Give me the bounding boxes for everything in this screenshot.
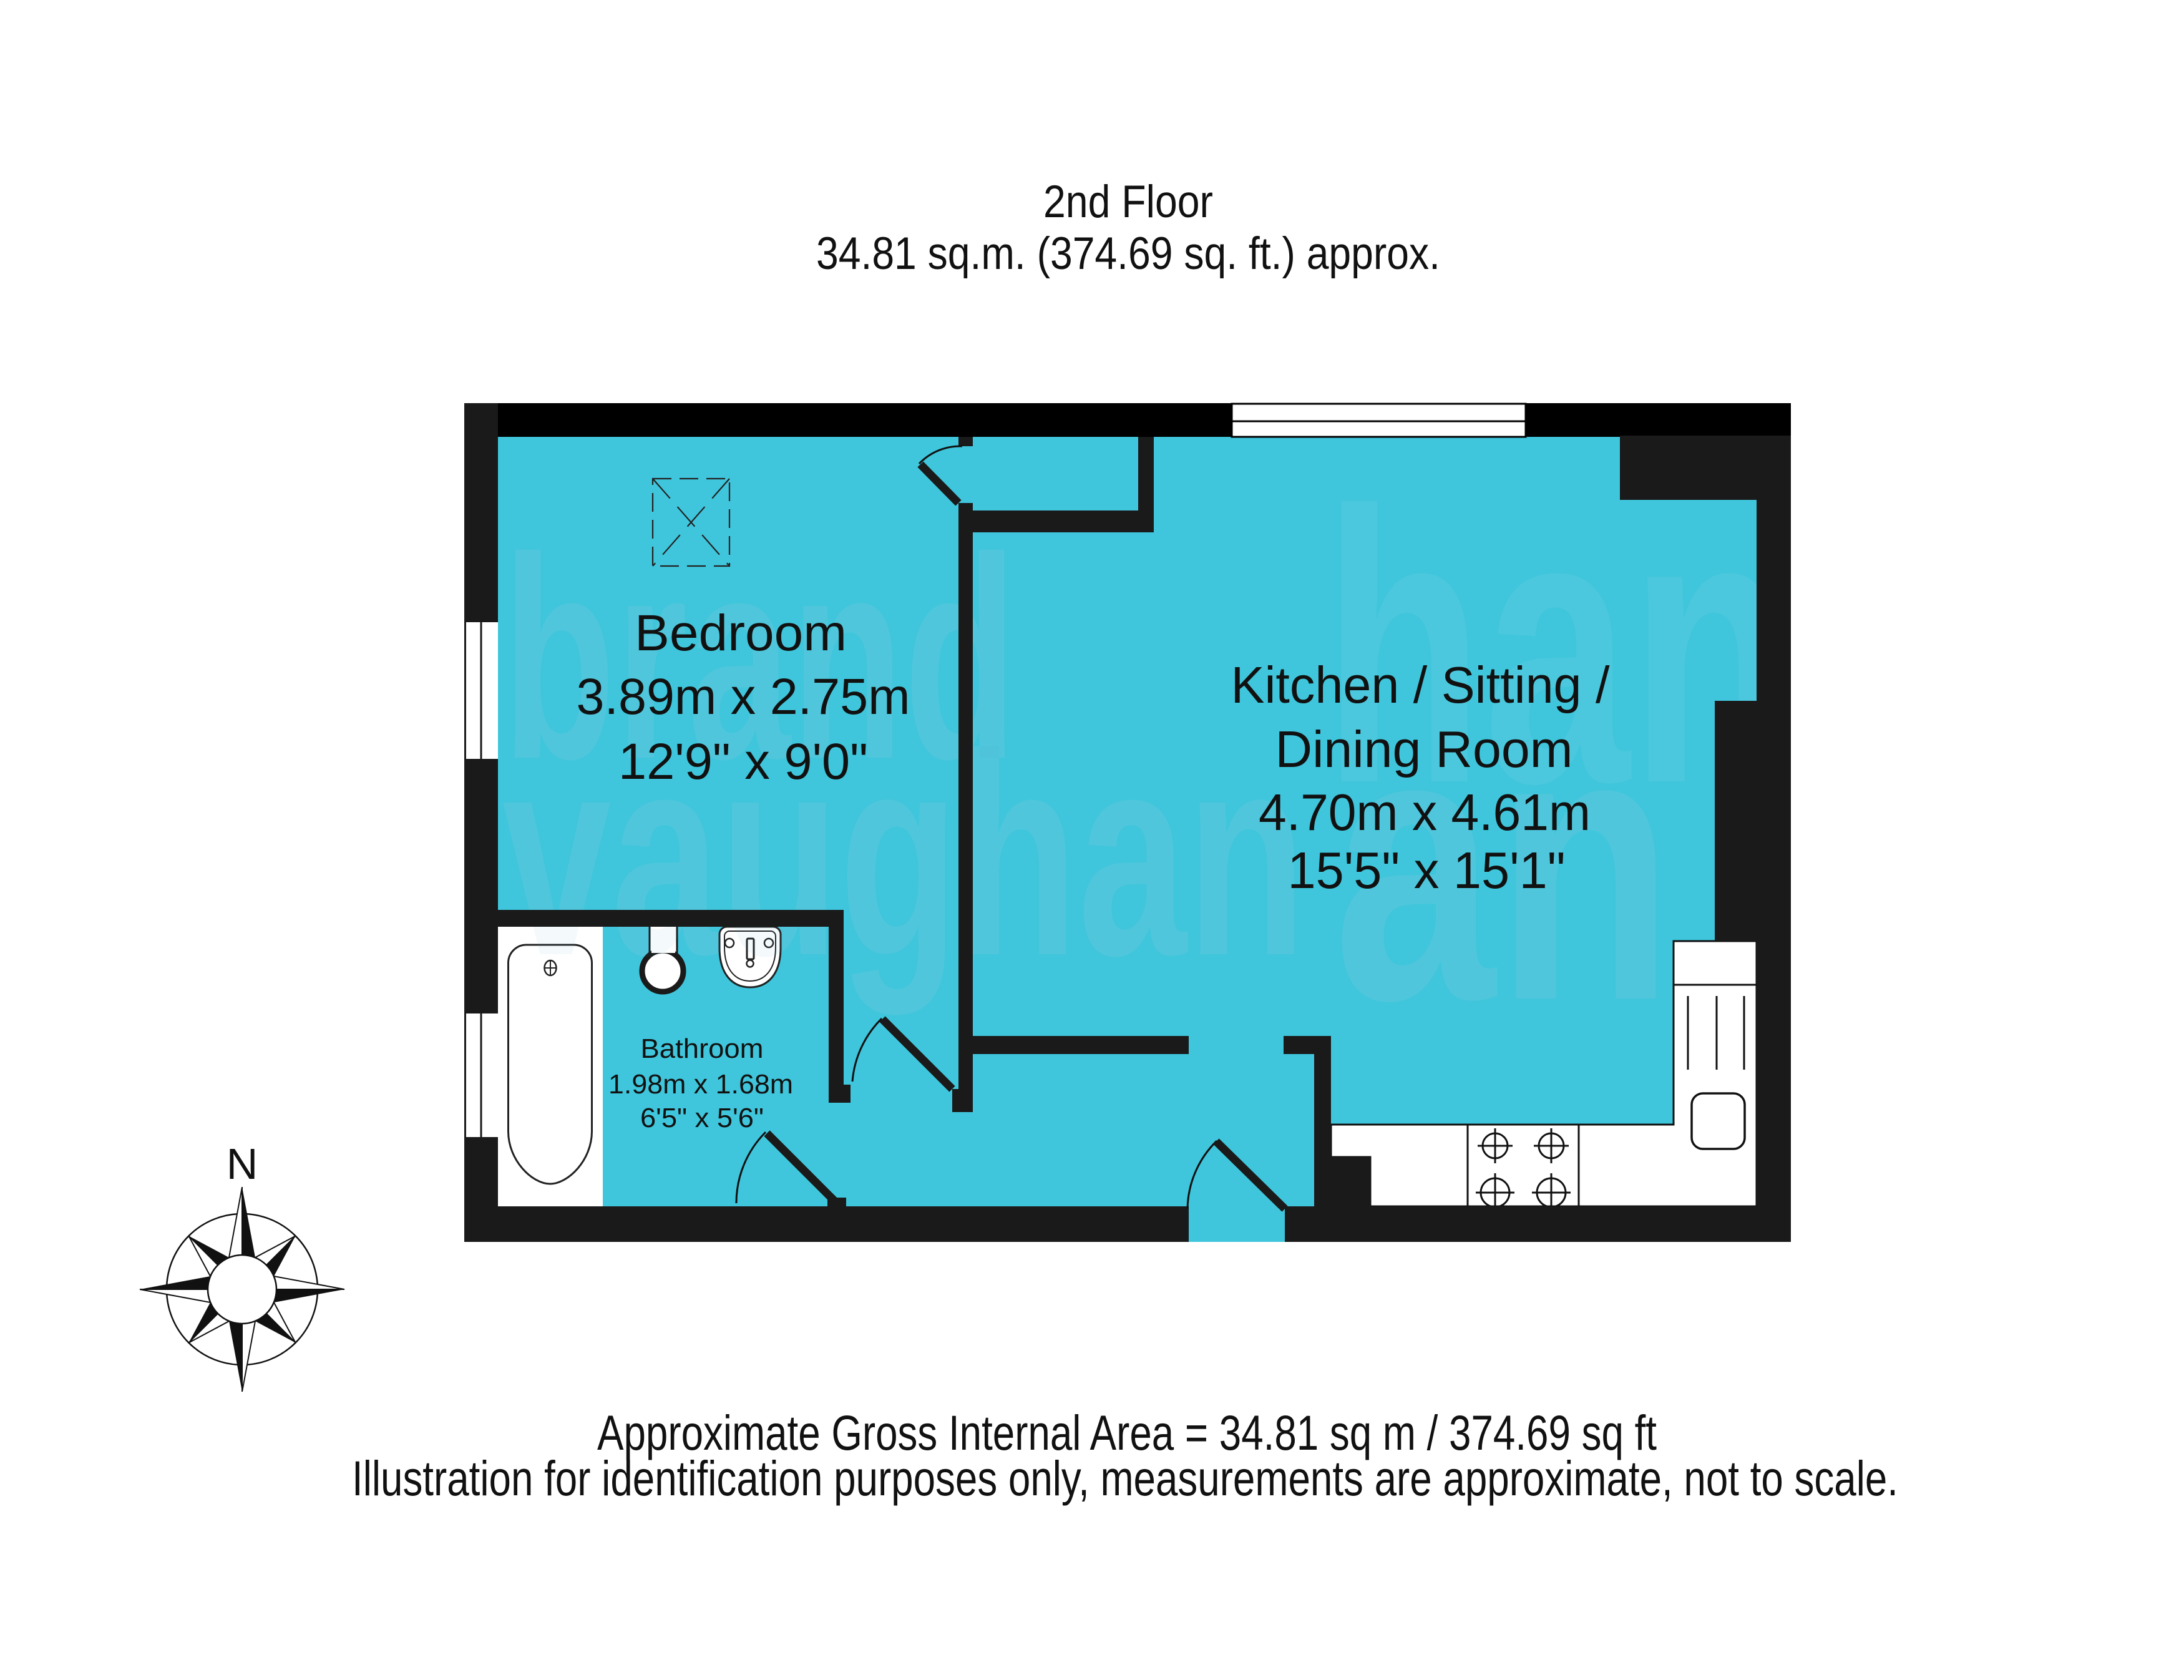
svg-text:15'5" x 15'1": 15'5" x 15'1": [1288, 841, 1566, 899]
svg-text:3.89m x 2.75m: 3.89m x 2.75m: [577, 668, 910, 725]
svg-text:Bathroom: Bathroom: [641, 1033, 764, 1064]
svg-text:Dining Room: Dining Room: [1275, 720, 1573, 778]
svg-text:6'5" x 5'6": 6'5" x 5'6": [640, 1103, 764, 1133]
svg-text:Bedroom: Bedroom: [635, 605, 847, 662]
svg-text:34.81 sq.m. (374.69 sq. ft.) a: 34.81 sq.m. (374.69 sq. ft.) approx.: [816, 228, 1440, 279]
svg-text:1.98m x 1.68m: 1.98m x 1.68m: [608, 1069, 793, 1100]
svg-text:Kitchen / Sitting /: Kitchen / Sitting /: [1231, 656, 1611, 714]
svg-text:N: N: [227, 1140, 258, 1188]
svg-text:2nd Floor: 2nd Floor: [1043, 177, 1213, 227]
svg-text:Illustration for identificatio: Illustration for identification purposes…: [352, 1450, 1898, 1506]
svg-text:12'9" x 9'0": 12'9" x 9'0": [618, 733, 868, 790]
svg-text:4.70m x 4.61m: 4.70m x 4.61m: [1259, 783, 1591, 841]
